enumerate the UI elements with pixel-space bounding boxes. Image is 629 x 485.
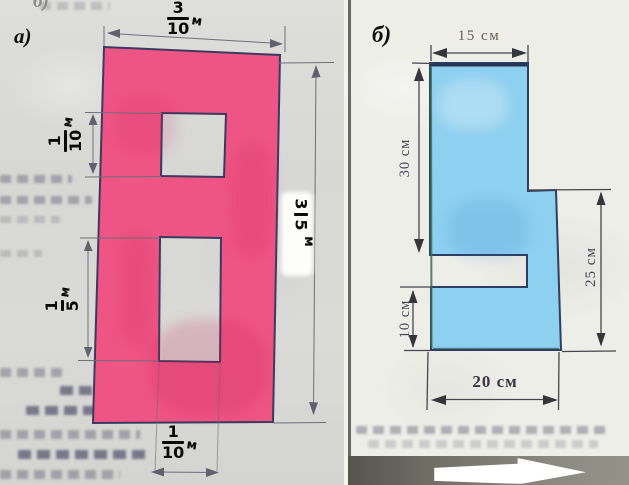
arrowhead [89, 114, 98, 125]
dim-label-bottom: 110 м [162, 424, 198, 461]
photo-right-figure-b: б) 15 см 30 см 10 см 25 см 20 см [348, 0, 629, 485]
extension-line [78, 361, 159, 362]
extension-line [528, 190, 611, 191]
dim-label-bottom: 20 см [464, 372, 526, 392]
arrowhead [543, 395, 558, 405]
fraction: 110 [162, 424, 184, 461]
photo-shading [448, 200, 528, 260]
figure-a-label: а) [14, 24, 32, 49]
fraction-denominator: 10 [68, 130, 84, 152]
arrowhead [151, 468, 164, 477]
fraction-numerator: 3 [293, 198, 309, 209]
unit: м [301, 236, 314, 247]
arrowhead [312, 65, 321, 78]
arrowhead [89, 163, 98, 174]
fraction-denominator: 5 [293, 219, 309, 230]
guide-line [559, 352, 560, 410]
arrowhead [432, 48, 447, 58]
photo-shading [115, 95, 175, 155]
arrowhead [270, 39, 283, 48]
ghost-text-smudge [356, 426, 606, 434]
figure-b-label: б) [372, 22, 391, 48]
arrowhead [84, 240, 93, 251]
unit: м [58, 286, 73, 299]
unit: м [61, 116, 76, 129]
photo-shading [120, 230, 154, 348]
dim-label-top: 310 м [167, 0, 203, 37]
fraction-numerator: 1 [44, 300, 60, 311]
fraction-denominator: 10 [162, 445, 184, 461]
dim-label-right: 25 см [583, 237, 599, 297]
fraction-numerator: 3 [173, 0, 184, 16]
photo-shading [150, 320, 268, 415]
fraction-denominator: 5 [65, 300, 81, 311]
arrowhead [84, 347, 93, 358]
arrowhead [414, 67, 424, 81]
dim-label-right: 3 5 м [288, 196, 314, 248]
shape-left-edge [431, 66, 432, 348]
photo-left-figure-a: б) [0, 0, 348, 485]
extension-line [85, 177, 161, 178]
fraction: 15 [44, 300, 81, 311]
textbook-photo-page: { "corner_fragment": "б)", "figure_a": {… [0, 0, 629, 485]
scan-dark-band [348, 456, 629, 485]
dim-label-left-upper: 30 см [397, 128, 413, 188]
extension-line [562, 351, 616, 352]
unit: м [191, 14, 204, 29]
arrowhead [512, 48, 527, 58]
guide-line [427, 352, 428, 410]
dim-label-hole-upper: 110 м [52, 107, 78, 161]
fraction: 310 [167, 0, 189, 37]
fraction: 110 [47, 130, 84, 152]
dim-label-hole-lower: 15 м [49, 275, 75, 323]
unit: м [186, 438, 199, 453]
arrowhead [431, 395, 446, 405]
arrowhead [414, 239, 424, 253]
photo-shading [438, 80, 508, 130]
arrowhead [309, 402, 318, 415]
extension-line [273, 423, 326, 424]
dim-label-left-lower: 10 см [397, 289, 413, 349]
fraction-denominator: 10 [167, 21, 189, 37]
fraction-numerator: 1 [168, 424, 179, 440]
arrowhead [597, 192, 606, 206]
ghost-text-smudge [368, 440, 598, 448]
fraction-bar [294, 213, 308, 216]
whiteout-arrow [434, 458, 586, 484]
fraction-numerator: 1 [47, 135, 63, 146]
arrowhead [597, 333, 606, 347]
extension-line [412, 63, 433, 64]
arrowhead [107, 29, 120, 38]
photo-shading [230, 140, 274, 260]
extension-line [278, 63, 334, 64]
dim-label-top: 15 см [448, 28, 510, 45]
